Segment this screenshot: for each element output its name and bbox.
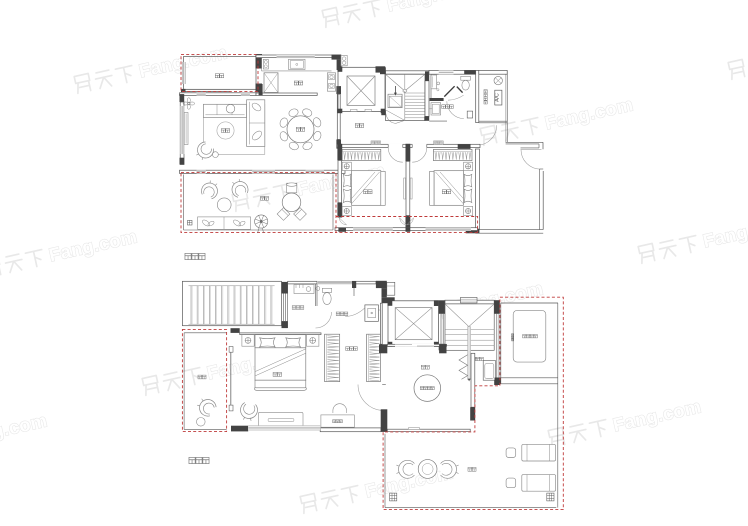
svg-text:A/C: A/C [495, 93, 501, 102]
